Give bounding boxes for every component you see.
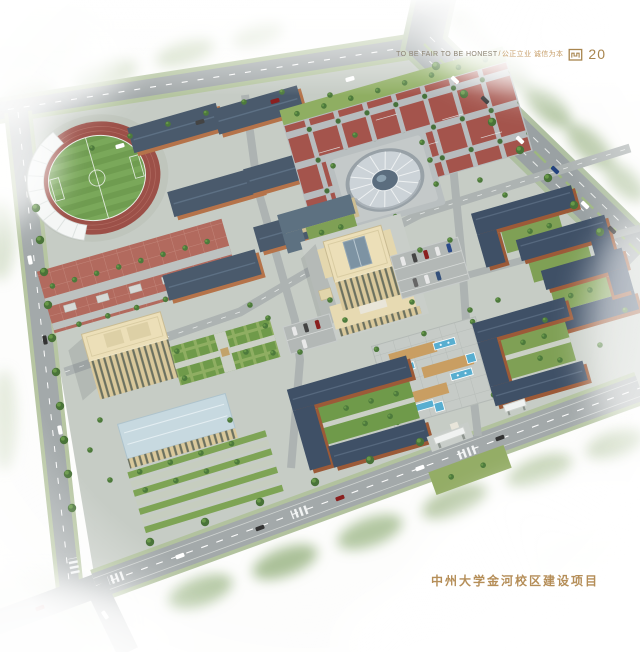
company-slogan: TO BE FAIR TO BE HONEST/公正立业 诚信为本 <box>396 49 563 59</box>
brochure-page: TO BE FAIR TO BE HONEST/公正立业 诚信为本 20 中州大… <box>0 0 640 652</box>
slogan-separator: / <box>499 51 501 58</box>
campus-aerial-rendering <box>0 0 640 652</box>
slogan-chinese: 公正立业 诚信为本 <box>502 51 564 58</box>
page-header: TO BE FAIR TO BE HONEST/公正立业 诚信为本 20 <box>396 44 606 64</box>
slogan-english: TO BE FAIR TO BE HONEST <box>396 51 497 58</box>
page-number: 20 <box>588 46 606 62</box>
company-logo-icon <box>568 47 583 62</box>
mist-vignette <box>0 0 640 652</box>
project-caption: 中州大学金河校区建设项目 <box>390 572 640 589</box>
